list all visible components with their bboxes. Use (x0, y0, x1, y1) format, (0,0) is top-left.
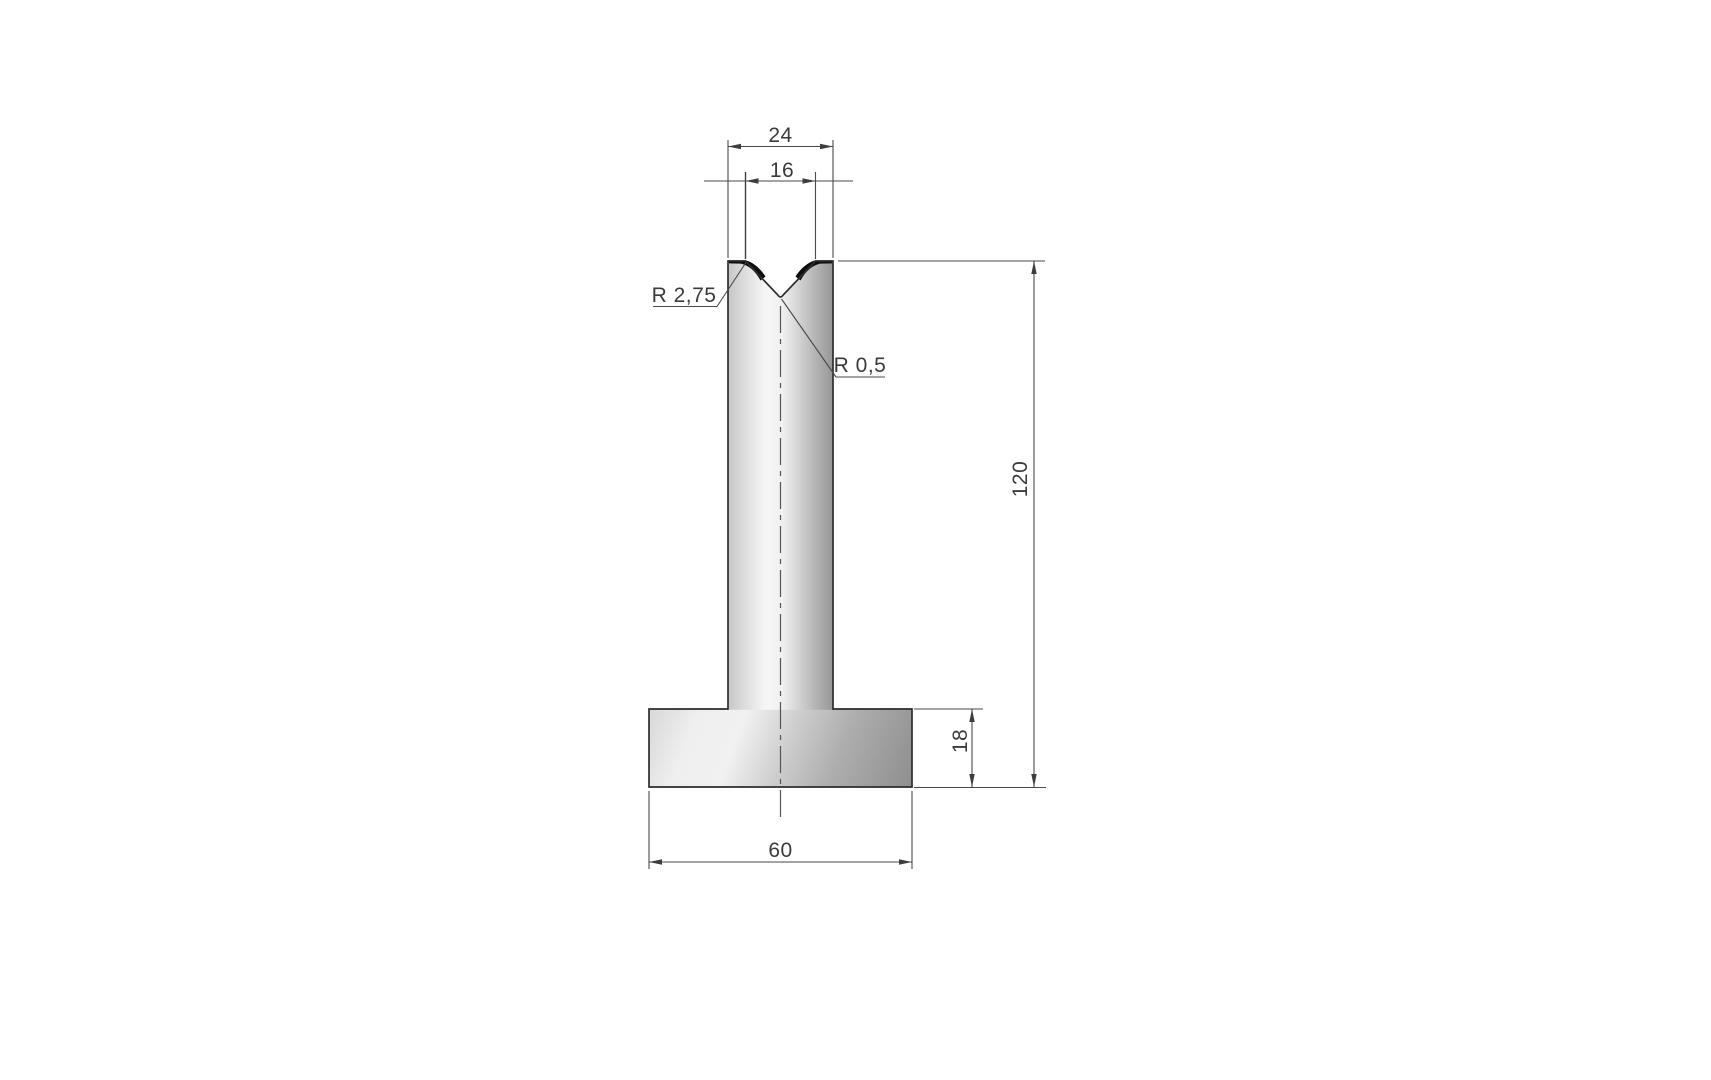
drawing-canvas: 24 16 120 18 (0, 0, 1711, 1080)
arrowhead-120-top (1031, 261, 1036, 274)
dim-top-width-label: 24 (768, 124, 792, 147)
dimension-base-height: 18 (914, 709, 983, 787)
radius-vertex-label: R 0,5 (834, 354, 887, 377)
arrowhead-60-right (899, 859, 912, 864)
dim-total-height-label: 120 (1009, 461, 1032, 498)
dimension-top-width: 24 (728, 124, 833, 258)
arrowhead-24-left (728, 144, 741, 149)
arrowhead-120-bottom (1031, 774, 1036, 787)
technical-drawing-svg: 24 16 120 18 (0, 0, 1711, 1080)
arrowhead-16-right (803, 178, 816, 183)
arrowhead-24-right (820, 144, 833, 149)
arrowhead-18-top (969, 709, 974, 722)
arrowhead-16-left (746, 178, 759, 183)
dimension-vee-opening: 16 (704, 159, 853, 259)
die-body (649, 260, 912, 818)
dim-base-height-label: 18 (949, 729, 972, 753)
arrowhead-60-left (649, 859, 662, 864)
radius-shoulder-label: R 2,75 (652, 284, 717, 307)
arrowhead-18-bottom (969, 774, 974, 787)
dim-vee-opening-label: 16 (770, 159, 794, 182)
dim-base-width-label: 60 (768, 839, 792, 862)
